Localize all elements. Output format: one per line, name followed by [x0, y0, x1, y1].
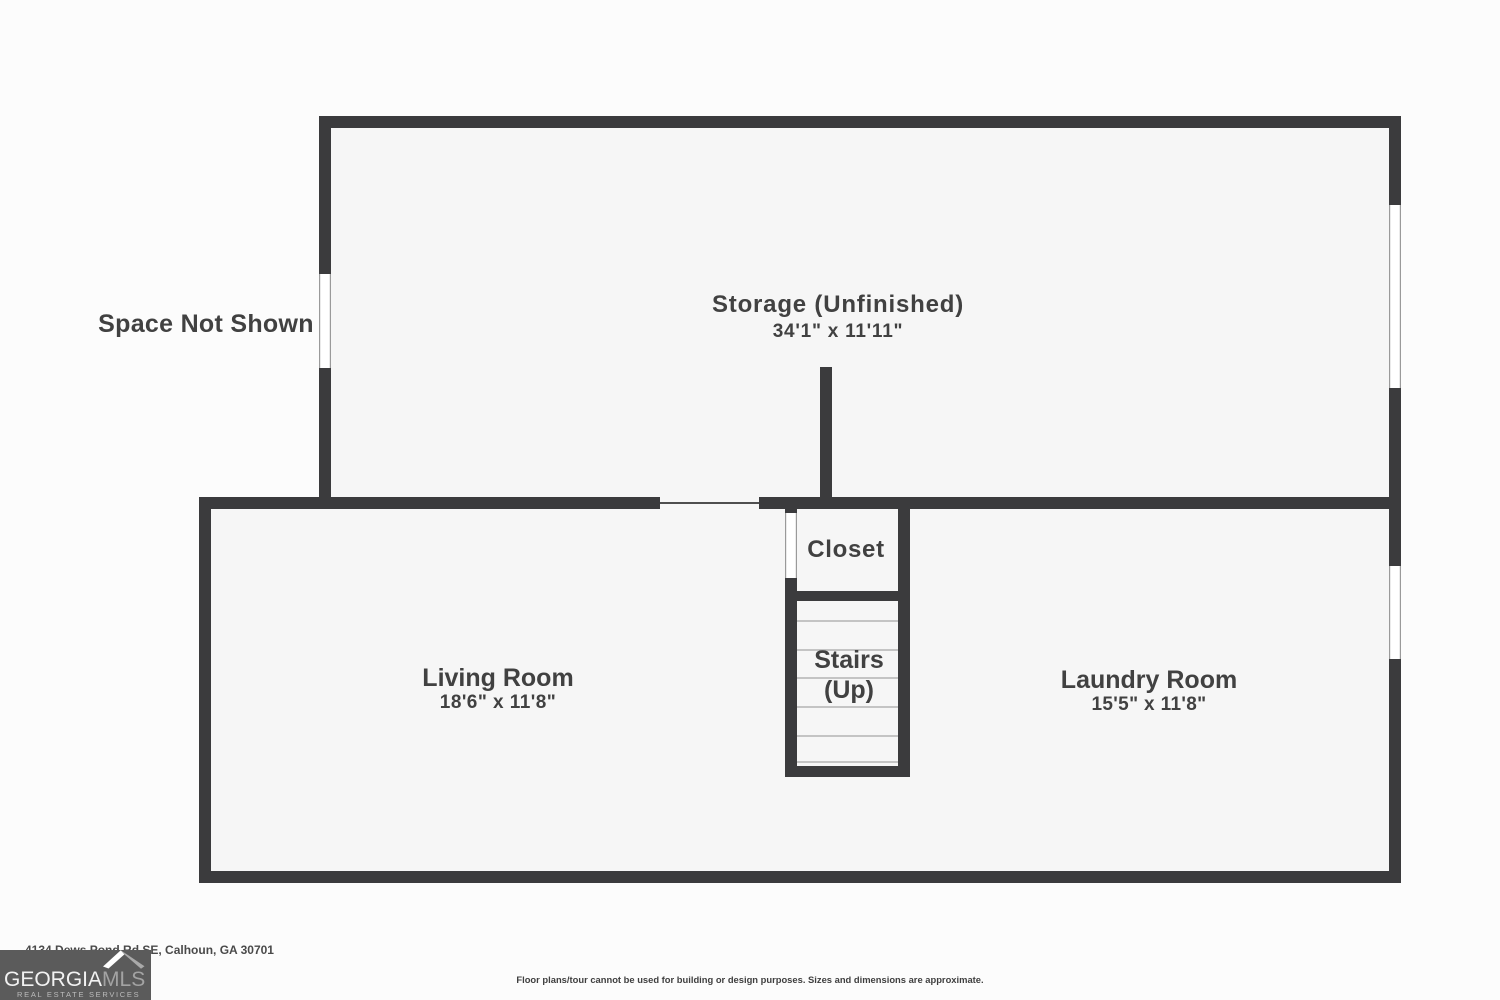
svg-text:15'5" x 11'8": 15'5" x 11'8": [1091, 694, 1206, 715]
svg-text:Floor plans/tour cannot be use: Floor plans/tour cannot be used for buil…: [516, 974, 983, 985]
svg-text:Storage (Unfinished): Storage (Unfinished): [712, 291, 964, 318]
svg-text:18'6" x 11'8": 18'6" x 11'8": [440, 692, 556, 713]
svg-text:GEORGIAMLS: GEORGIAMLS: [4, 968, 145, 991]
svg-text:(Up): (Up): [824, 676, 874, 704]
svg-text:Laundry Room: Laundry Room: [1061, 666, 1237, 694]
svg-text:34'1" x 11'11": 34'1" x 11'11": [773, 321, 904, 342]
svg-text:Closet: Closet: [807, 536, 885, 563]
svg-text:Space Not Shown: Space Not Shown: [98, 310, 314, 338]
svg-text:REAL ESTATE SERVICES: REAL ESTATE SERVICES: [17, 990, 140, 999]
svg-text:Stairs: Stairs: [814, 646, 883, 674]
svg-text:Living Room: Living Room: [422, 664, 573, 692]
